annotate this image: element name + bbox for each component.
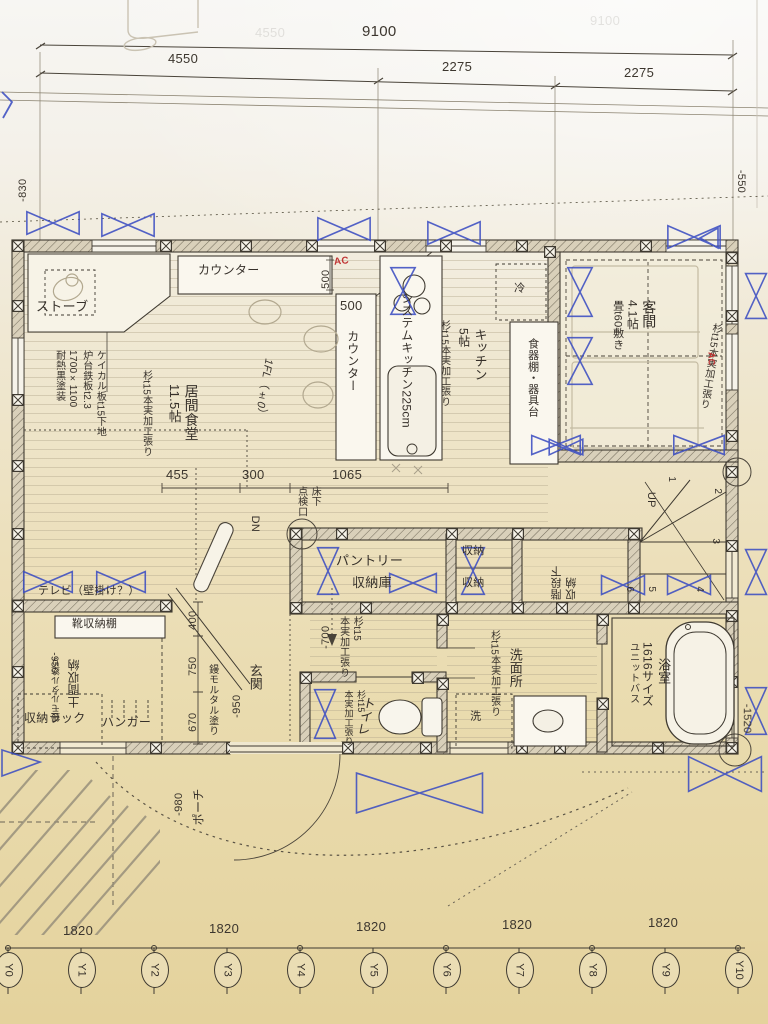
note-hearth: ケイカル板t15下地 炉台鉄板t2.3 1700×1100 耐熱黒塗装 [50,350,104,468]
label-bath: 浴室 1616サイズ ユニットバス [624,642,670,728]
label-shoe-shelf: 靴収納棚 [72,619,117,631]
grid-axis-y5: Y5 [360,952,388,988]
hall-finish: 杉t15 本実加工張り [334,616,361,680]
grid-pitch-4: 1820 [502,918,532,932]
label-stairs-up: UP [644,492,656,508]
grid-pitch-1: 1820 [63,924,93,938]
label-tv: テレビ（壁掛け？） [38,586,140,598]
bath-type: ユニットバス [627,642,638,728]
label-pantry-1: パントリー [336,554,403,568]
grid-axis-y10: Y10 [725,952,753,988]
hall-finish-2: 本実加工張り [337,616,348,680]
offset-right-1520: -1520 [740,704,752,752]
bath-name: 浴室 [656,642,670,728]
ac-mark-counter: AC [333,256,349,268]
label-kitchen: キッチン 5帖 [454,328,486,394]
hall-finish-1: 杉t15 [351,616,362,680]
label-storage-a: 収納 [462,546,485,558]
dim-e750: 750 [188,648,200,676]
label-under-stairs-storage: 階段下 収納 [552,550,581,600]
dim-counter-500-v: 500 [321,259,333,289]
grid-axis-y8: Y8 [579,952,607,988]
dim-300: 300 [242,468,265,482]
note-hearth-1: ケイカル板t15下地 [94,350,105,468]
grid-axis-y3: Y3 [214,952,242,988]
porch-detail [0,742,768,974]
offset-left-830: -830 [18,162,30,202]
dim-doma-950: -950 [48,652,59,686]
kitchen-finish: 杉t15本実加工張り [438,320,449,410]
toilet-finish-2: 本実加工張り [343,690,353,748]
bleedthrough-sketch [123,0,198,52]
under-stairs-l1: 階段下 [552,550,564,600]
label-cupboard: 食器棚・器具台 [526,338,538,458]
label-rack: 収納ラック [24,712,86,725]
guest-name: 客間 [641,300,656,400]
stair-step-6: 6 [624,586,635,592]
note-hearth-3: 1700×1100 [67,350,78,468]
dim-1065: 1065 [332,468,362,482]
washroom-finish: 杉t15本実加工張り [488,630,499,724]
label-counter-side: カウンター [346,330,359,400]
label-counter-top: カウンター [198,264,260,277]
stair-step-2: 2 [712,488,723,494]
label-washer: 洗 [468,710,480,721]
label-dn: DN [248,516,260,533]
stair-step-4: 4 [694,586,705,592]
dim-total-width: 9100 [362,24,397,40]
toilet-finish-1: 杉t15 [356,690,366,748]
grid-axis-y1: Y1 [68,952,96,988]
inspection-l1: 床下 [309,486,320,526]
dim-455: 455 [166,468,189,482]
dim-seg-4550: 4550 [168,52,198,66]
grid-axis-y9: Y9 [652,952,680,988]
grid-axis-y7: Y7 [506,952,534,988]
label-doma: 土間収納 [68,654,81,708]
grid-axis-y2: Y2 [141,952,169,988]
floor-plan-photo: 9100 4550 9100 4550 2275 2275 -830 -550 … [0,0,768,1024]
label-inspection-hatch: 床下 点検口 [292,486,319,526]
label-hanger: ハンガー [102,716,151,729]
guest-tatami: 畳t60敷き [611,300,623,400]
note-hearth-4: 耐熱黒塗装 [53,350,64,468]
toilet-finish: 杉t15 本実加工張り [340,690,365,748]
label-stove: ストーブ [36,300,88,314]
dim-700: -700 [321,615,333,649]
kitchen-size: 5帖 [457,328,470,394]
dim-e670: 670 [188,704,200,732]
dim-seg-2275-b: 2275 [624,66,654,80]
dim-entrance-950: -950 [232,682,244,718]
label-living: 居間食堂 11.5帖 [164,384,199,466]
label-washroom: 洗面所 [508,648,522,696]
dim-seg-2275-a: 2275 [442,60,472,74]
kitchen-name: キッチン [473,328,487,394]
grid-axis-y4: Y4 [287,952,315,988]
note-hearth-2: 炉台鉄板t2.3 [80,350,91,468]
guest-size: 4.1帖 [626,300,639,400]
bleedthrough-dim-seg: 4550 [255,26,285,40]
label-porch: ポーチ [193,783,206,825]
offset-right-550: -550 [734,170,746,210]
grid-pitch-2: 1820 [209,922,239,936]
dim-porch-980: -980 [174,776,186,816]
dim-e400: 400 [188,602,200,630]
living-name: 居間食堂 [184,384,199,466]
entrance-finish: 鏝モルタル塗り [206,664,217,746]
label-pantry-2: 収納庫 [352,576,392,590]
living-finish: 杉t15本実加工張り [140,370,151,470]
grid-pitch-3: 1820 [356,920,386,934]
stair-step-5: 5 [646,586,657,592]
grid-axis-y6: Y6 [433,952,461,988]
label-fridge: 冷 [512,282,524,293]
bleedthrough-dim-total: 9100 [590,14,620,28]
grid-pitch-5: 1820 [648,916,678,930]
bath-size: 1616サイズ [641,642,654,728]
kitchen-unit-note: システムキッチン225cm [400,292,413,477]
dim-counter-500-h: 500 [340,299,363,313]
under-stairs-l2: 収納 [567,550,579,600]
inspection-l2: 点検口 [295,486,306,526]
ac-mark-guest: AC [706,352,716,366]
stair-step-3: 3 [710,538,721,544]
living-size: 11.5帖 [167,384,181,466]
label-guest: 客間 4.1帖 畳t60敷き [608,300,656,400]
plan-linework [0,0,768,1024]
stair-step-1: 1 [666,476,677,482]
label-entrance: 玄関 [248,664,262,698]
label-storage-b: 収納 [462,578,485,590]
